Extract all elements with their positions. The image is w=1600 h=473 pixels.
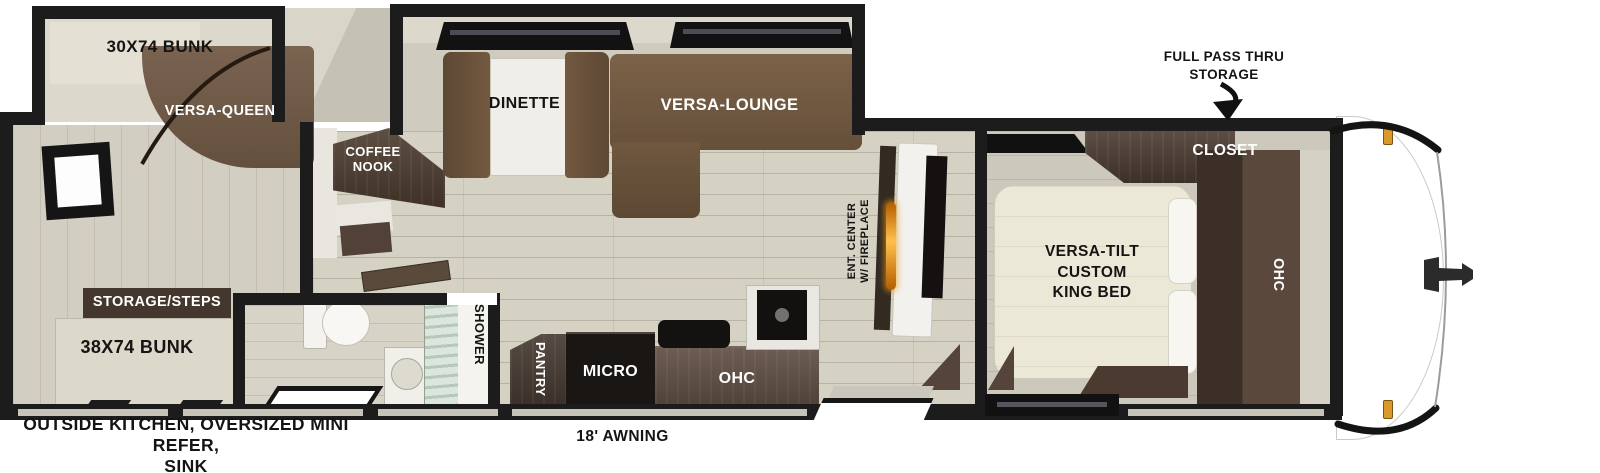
wall-bedroom-divider [975,131,987,404]
wall-bath-left [233,293,245,420]
dinette-table [490,58,567,176]
label-bunk-bottom: 38X74 BUNK [62,336,212,360]
bedroom-head-wall-face [1300,150,1330,404]
label-micro: MICRO [566,332,655,413]
label-storage-steps: STORAGE/STEPS [83,288,231,318]
label-king-bed: VERSA-TILT CUSTOM KING BED [1012,238,1172,308]
label-bedroom-ohc: OHC [1258,258,1286,322]
versa-lounge-chaise [612,142,700,218]
wall-main-slide-left [390,4,403,135]
clearance-marker-bottom [1383,400,1393,419]
dinette-bench-left [443,52,490,178]
annotation-awning: 18' AWNING [525,427,720,447]
bedroom-window-top [985,134,1089,153]
label-versa-lounge: VERSA-LOUNGE [642,96,817,116]
label-versa-queen: VERSA-QUEEN [158,103,282,121]
wall-rear-right [300,122,313,300]
label-kitchen-ohc: OHC [655,346,819,413]
wall-rear-left [0,112,13,420]
entry-door-opening [812,398,933,423]
toilet-bowl [322,300,370,346]
label-coffee-nook: COFFEE NOOK [335,139,411,179]
dinette-bench-right [565,52,609,178]
compartment-door-5 [1128,409,1324,416]
rv-floorplan: 30X74 BUNK VERSA-QUEEN STORAGE/STEPS 38X… [0,0,1600,473]
trailer-nose [1336,116,1444,440]
coffee-nook-base-cabinet [340,222,392,256]
wall-main-slide-top [390,4,865,17]
bed-pillow-top [1168,198,1197,284]
label-closet: CLOSET [1160,141,1290,161]
compartment-door-3 [378,409,498,416]
label-ent-center: ENT. CENTER W/ FIREPLACE [844,178,874,304]
rear-window-pane [54,155,101,208]
bed-pillow-bottom [1168,290,1197,374]
clearance-marker-top [1383,126,1393,145]
wall-rear-slide-top [32,6,285,19]
wall-main-top [852,118,1338,131]
shower-glass [424,299,459,406]
label-pantry: PANTRY [524,342,548,412]
slide-window-right-pane [683,29,841,34]
label-shower: SHOWER [461,304,487,404]
bath-sink-basin [391,358,423,390]
slide-window-right [670,22,854,48]
slide-window-left [436,22,634,50]
wall-front [1330,118,1343,416]
annotation-pass-thru-storage: FULL PASS THRU STORAGE [1140,46,1308,86]
bunk-38 [55,318,235,408]
cooktop [658,320,730,348]
annotation-outside-features: OUTSIDE KITCHEN, OVERSIZED MINI REFER, S… [0,422,372,468]
slide-window-left-pane [450,30,620,35]
wall-rear-slide-left [32,6,45,122]
wall-bath-right [488,293,500,420]
label-bunk-top: 30X74 BUNK [70,36,250,58]
label-dinette: DINETTE [462,94,587,114]
bedroom-window-bottom-pane [997,402,1107,407]
fireplace-glow [886,202,896,290]
wall-main-slide-right [852,4,865,135]
pass-thru-arrow [1221,84,1236,107]
kitchen-sink-drain [775,308,789,322]
wall-rear-top-stub [0,112,45,125]
